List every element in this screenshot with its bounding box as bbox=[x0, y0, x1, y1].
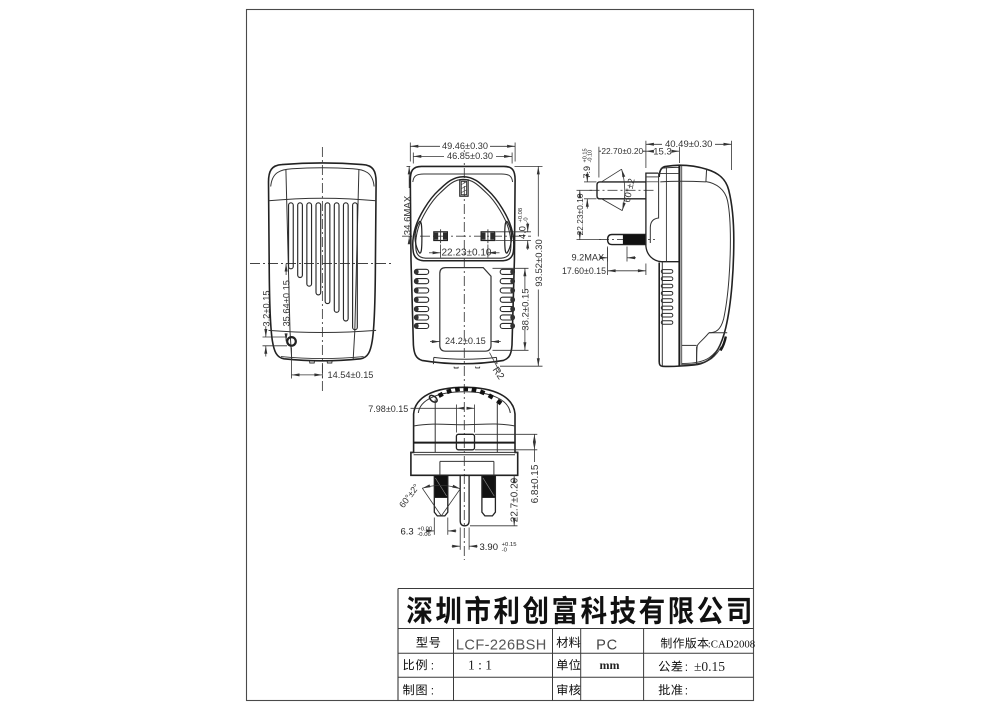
svg-text:1 : 1: 1 : 1 bbox=[468, 658, 492, 673]
svg-text:22.70±0.20: 22.70±0.20 bbox=[601, 146, 643, 156]
svg-text:22.7±0.20: 22.7±0.20 bbox=[510, 477, 521, 522]
svg-text::: : bbox=[577, 636, 580, 650]
svg-text:24.2±0.15: 24.2±0.15 bbox=[445, 336, 486, 346]
svg-text:22.23±0.10: 22.23±0.10 bbox=[575, 193, 585, 235]
svg-text::: : bbox=[431, 659, 434, 673]
svg-text:3.2±0.15: 3.2±0.15 bbox=[261, 290, 271, 326]
svg-text:-0: -0 bbox=[523, 217, 529, 222]
svg-text:7.98±0.15: 7.98±0.15 bbox=[368, 404, 408, 414]
svg-text:3.90: 3.90 bbox=[480, 542, 499, 553]
svg-text::: : bbox=[431, 684, 434, 698]
svg-text:38.2±0.15: 38.2±0.15 bbox=[521, 288, 532, 330]
svg-text:35.64±0.15: 35.64±0.15 bbox=[282, 280, 292, 326]
svg-text::: : bbox=[685, 684, 688, 698]
svg-text::CAD2008: :CAD2008 bbox=[708, 639, 755, 651]
svg-text:-0.06: -0.06 bbox=[417, 532, 431, 538]
svg-text:17.60±0.15: 17.60±0.15 bbox=[562, 266, 606, 276]
svg-text:93.52±0.30: 93.52±0.30 bbox=[534, 239, 545, 286]
svg-text:7.9: 7.9 bbox=[582, 166, 592, 179]
svg-text:PC: PC bbox=[596, 637, 618, 653]
svg-text:14.54±0.15: 14.54±0.15 bbox=[328, 370, 374, 380]
svg-text:49.46±0.30: 49.46±0.30 bbox=[442, 141, 488, 151]
svg-text:40.49±0.30: 40.49±0.30 bbox=[665, 139, 712, 150]
svg-text::: : bbox=[577, 684, 580, 698]
svg-text:LCF-226BSH: LCF-226BSH bbox=[456, 637, 547, 653]
svg-text::: : bbox=[685, 660, 688, 674]
svg-text:46.85±0.30: 46.85±0.30 bbox=[447, 151, 493, 161]
svg-text:6.8±0.15: 6.8±0.15 bbox=[530, 464, 541, 503]
svg-text:6.3: 6.3 bbox=[401, 526, 414, 537]
svg-text:mm: mm bbox=[600, 658, 620, 672]
svg-text:-0: -0 bbox=[502, 548, 508, 554]
svg-text:15.3: 15.3 bbox=[653, 147, 672, 158]
svg-text:-0.10: -0.10 bbox=[588, 150, 594, 163]
svg-text:4.0: 4.0 bbox=[518, 226, 528, 239]
svg-text:9.2MAX: 9.2MAX bbox=[572, 253, 605, 263]
svg-text:34.6MAX: 34.6MAX bbox=[402, 195, 413, 235]
svg-text:22.23±0.10: 22.23±0.10 bbox=[442, 247, 492, 258]
svg-text::: : bbox=[577, 659, 580, 673]
svg-text:±0.15: ±0.15 bbox=[694, 659, 725, 674]
